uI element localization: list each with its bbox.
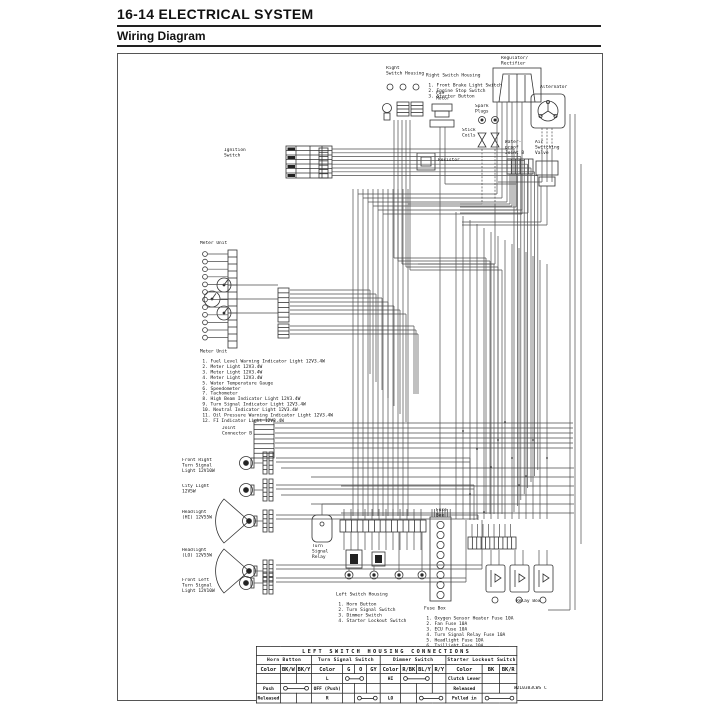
label-spark-plugs: Spark Plugs bbox=[475, 104, 489, 115]
note-title: Fuse Box bbox=[424, 606, 513, 611]
label-regulator-rectifier: Regulator/ Rectifier bbox=[501, 56, 528, 67]
label-relay-box: Relay Box bbox=[516, 599, 541, 604]
label-ignition-switch: Ignition Switch bbox=[224, 148, 246, 159]
label-stick-coils: Stick Coils bbox=[462, 128, 476, 139]
conn-color-header: Color bbox=[446, 664, 482, 673]
conn-cell bbox=[296, 674, 312, 684]
connections-table-title: LEFT SWITCH HOUSING CONNECTIONS bbox=[256, 646, 516, 655]
section-title: Wiring Diagram bbox=[117, 29, 206, 43]
relay-box-symbol bbox=[486, 565, 553, 603]
conn-color-code: R/Y bbox=[432, 664, 446, 673]
label-headlight-hi: Headlight (HI) 12V55W bbox=[182, 510, 212, 521]
light-symbols bbox=[216, 457, 257, 594]
connection-bar bbox=[359, 698, 376, 699]
conn-cell bbox=[296, 693, 312, 703]
title-rule bbox=[117, 25, 601, 27]
label-turn-signal-relay: Turn Signal Relay bbox=[312, 544, 328, 560]
conn-section-header: Turn Signal Switch bbox=[312, 655, 380, 664]
label-waterproof-joint-b: Water- proof Joint B bbox=[505, 140, 524, 156]
conn-cell bbox=[355, 683, 367, 693]
connection-bar bbox=[347, 678, 363, 679]
stick-coils-symbol bbox=[478, 133, 499, 147]
label-resistor: Resistor bbox=[438, 158, 460, 163]
conn-position-label: HI bbox=[380, 674, 401, 684]
left-switch-housing-symbol bbox=[345, 550, 426, 579]
connection-bar bbox=[405, 678, 428, 679]
label-meter-unit: Meter Unit bbox=[200, 241, 227, 246]
connection-bar bbox=[487, 698, 513, 699]
note-left-switch-housing: Left Switch Housing 1. Horn Button 2. Tu… bbox=[336, 587, 406, 630]
conn-position-label: OFF (Push) bbox=[312, 683, 343, 693]
conn-cell bbox=[482, 693, 516, 703]
conn-color-header: Color bbox=[312, 664, 343, 673]
conn-cell bbox=[417, 693, 447, 703]
note-items: 1. Horn Button 2. Turn Signal Switch 3. … bbox=[338, 603, 406, 624]
conn-position-label: Push bbox=[256, 683, 280, 693]
conn-cell bbox=[343, 693, 355, 703]
note-items: 1. Fuel Level Warning Indicator Light 12… bbox=[202, 360, 333, 424]
conn-position-label: L bbox=[312, 674, 343, 684]
label-fuse-box: Fuse Box bbox=[436, 508, 447, 519]
label-front-left-turn-signal: Front Left Turn Signal Light 12V10W bbox=[182, 578, 215, 594]
conn-section-header: Dimmer Switch bbox=[380, 655, 446, 664]
conn-color-header: Color bbox=[380, 664, 401, 673]
label-air-switching-valve: Air Switching Valve bbox=[535, 140, 560, 156]
conn-cell bbox=[280, 693, 296, 703]
conn-cell bbox=[280, 674, 296, 684]
fuse-box-symbol bbox=[430, 517, 451, 601]
subtitle-rule bbox=[117, 45, 601, 47]
conn-position-label bbox=[256, 674, 280, 684]
fan-motor-symbol bbox=[430, 104, 454, 127]
conn-cell bbox=[367, 683, 380, 693]
alternator-symbol bbox=[531, 94, 565, 128]
note-title: Meter Unit bbox=[200, 349, 333, 354]
conn-section-header: Horn Button bbox=[256, 655, 311, 664]
label-joint-connector-b: Joint Connector B bbox=[222, 426, 252, 437]
conn-cell bbox=[355, 693, 380, 703]
conn-cell bbox=[500, 674, 517, 684]
conn-cell bbox=[432, 683, 446, 693]
conn-cell bbox=[401, 683, 417, 693]
conn-color-header: Color bbox=[256, 664, 280, 673]
conn-color-code: G bbox=[343, 664, 355, 673]
label-headlight-lo: Headlight (LO) 12V55W bbox=[182, 548, 212, 559]
diagram-part-number: W2L0383CWS C bbox=[514, 686, 547, 691]
conn-position-label: Clutch Lever bbox=[446, 674, 482, 684]
note-meter-unit: Meter Unit 1. Fuel Level Warning Indicat… bbox=[200, 344, 333, 429]
conn-cell bbox=[401, 674, 432, 684]
connections-table: LEFT SWITCH HOUSING CONNECTIONSHorn Butt… bbox=[256, 646, 517, 703]
conn-color-code: BK bbox=[482, 664, 499, 673]
conn-cell bbox=[367, 674, 380, 684]
label-alternator: Alternator bbox=[540, 85, 567, 90]
meter-unit-symbol bbox=[203, 252, 231, 340]
conn-color-code: BK/W bbox=[280, 664, 296, 673]
conn-cell bbox=[401, 693, 417, 703]
conn-color-code: O bbox=[355, 664, 367, 673]
conn-cell bbox=[432, 674, 446, 684]
conn-position-label: LO bbox=[380, 693, 401, 703]
conn-color-code: BL/Y bbox=[417, 664, 433, 673]
ignition-switch-connector bbox=[286, 146, 332, 178]
page-title: 16-14 ELECTRICAL SYSTEM bbox=[117, 6, 313, 22]
conn-position-label: Pulled in bbox=[446, 693, 482, 703]
label-city-light: City Light 12V5W bbox=[182, 484, 209, 495]
conn-color-code: GY bbox=[367, 664, 380, 673]
conn-cell bbox=[343, 683, 355, 693]
wiring-diagram: Right Switch Housing Right Switch Housin… bbox=[117, 53, 603, 701]
conn-position-label: R bbox=[312, 693, 343, 703]
conn-cell bbox=[482, 674, 499, 684]
label-fan-motor: Fan Motor bbox=[436, 91, 450, 102]
conn-cell bbox=[280, 683, 311, 693]
label-front-right-turn-signal: Front Right Turn Signal Light 12V10W bbox=[182, 458, 215, 474]
spark-plugs-symbol bbox=[479, 117, 499, 124]
conn-cell bbox=[482, 683, 499, 693]
conn-position-label: Released bbox=[256, 693, 280, 703]
connection-bar bbox=[285, 688, 308, 689]
conn-position-label bbox=[380, 683, 401, 693]
conn-position-label: Released bbox=[446, 683, 482, 693]
note-title: Left Switch Housing bbox=[336, 592, 406, 597]
conn-section-header: Starter Lockout Switch bbox=[446, 655, 517, 664]
connections-table-wrapper: LEFT SWITCH HOUSING CONNECTIONSHorn Butt… bbox=[256, 646, 517, 703]
resistor-symbol bbox=[417, 153, 435, 170]
conn-cell bbox=[417, 683, 433, 693]
conn-color-code: R/BK bbox=[401, 664, 417, 673]
connection-bar bbox=[421, 698, 442, 699]
conn-cell bbox=[343, 674, 367, 684]
conn-color-code: BK/R bbox=[500, 664, 517, 673]
note-title: Right Switch Housing bbox=[426, 73, 502, 78]
conn-color-code: BK/Y bbox=[296, 664, 312, 673]
label-right-switch-housing: Right Switch Housing bbox=[386, 66, 424, 77]
